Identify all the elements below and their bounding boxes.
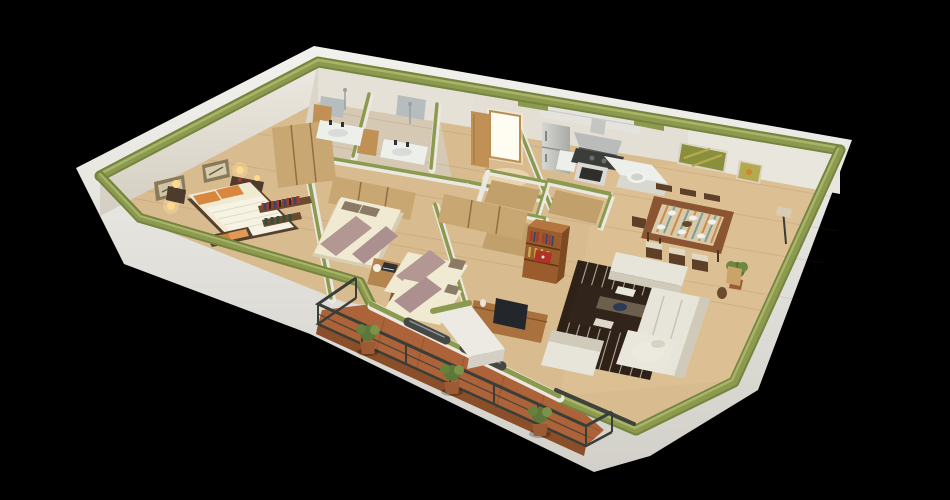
- floorplan-render: [0, 0, 950, 500]
- plant-foliage: [528, 406, 538, 416]
- shower-head-icon: [343, 88, 347, 92]
- plate-icon: [708, 219, 717, 224]
- entry: [471, 108, 523, 168]
- floorplan-svg: [0, 0, 950, 500]
- plate-icon: [657, 224, 666, 229]
- table-bowl: [651, 340, 665, 348]
- plant-foliage: [356, 324, 366, 334]
- plant-pot: [444, 382, 460, 394]
- faucet-icon: [394, 140, 397, 145]
- plant-pot: [532, 424, 548, 436]
- faucet-icon: [406, 142, 409, 147]
- plate-icon: [668, 210, 677, 215]
- desk-lamp-icon: [373, 264, 381, 272]
- book-cover-art: [542, 256, 545, 259]
- bookshelf-unit: [522, 219, 570, 284]
- pot-icon: [602, 159, 607, 164]
- hood-chimney: [590, 118, 606, 135]
- plate-icon: [689, 215, 698, 220]
- basket-lamp: [726, 266, 742, 286]
- table-lamp-icon: [254, 175, 260, 181]
- faucet-icon: [341, 122, 344, 127]
- plant-foliage: [370, 325, 380, 335]
- pot-icon: [590, 156, 595, 161]
- plant-foliage: [440, 364, 450, 374]
- wall-sconce-icon: [236, 166, 244, 174]
- vase: [480, 299, 486, 307]
- table-lamp-icon: [172, 180, 180, 188]
- plant-foliage: [454, 365, 464, 375]
- shower-head-icon: [408, 102, 412, 106]
- centerpiece: [682, 221, 692, 227]
- floor-jug: [717, 287, 727, 299]
- plate-icon: [697, 233, 706, 238]
- sink-basin: [392, 148, 412, 156]
- open-entry-door-glow: [490, 111, 520, 162]
- red-book: [238, 178, 242, 182]
- plant-foliage: [542, 407, 552, 417]
- wall-sconce-icon: [167, 202, 175, 210]
- faucet-icon: [329, 120, 332, 125]
- plate-icon: [678, 229, 687, 234]
- plant-pot: [360, 342, 376, 354]
- sink-basin: [631, 174, 643, 181]
- navy-bowl: [613, 303, 627, 311]
- painting-accent: [746, 169, 752, 175]
- sink-basin: [328, 129, 348, 137]
